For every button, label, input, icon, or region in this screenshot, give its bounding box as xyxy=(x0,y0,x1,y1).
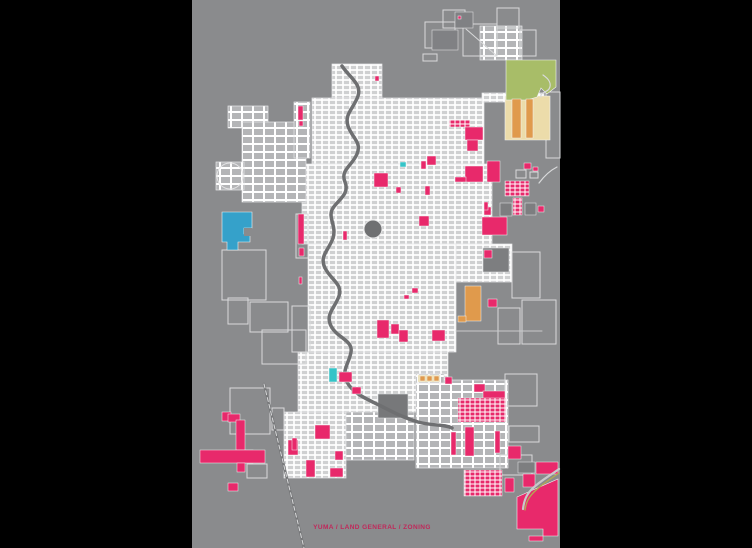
highlight-parcel xyxy=(487,161,500,182)
highlight-parcel xyxy=(228,483,238,491)
highlight-parcel xyxy=(399,330,408,342)
highlight-parcel xyxy=(451,432,456,455)
highlight-parcel xyxy=(374,173,388,187)
highlight-parcel xyxy=(425,186,430,195)
highlight-parcel xyxy=(404,295,409,299)
dark-parcel xyxy=(525,203,536,215)
highlight-parcel xyxy=(343,231,347,240)
highlight-parcel xyxy=(465,166,483,182)
highlight-parcel xyxy=(449,120,470,127)
highlight-parcel xyxy=(505,478,514,492)
highlight-parcel xyxy=(458,398,506,422)
highlight-parcel xyxy=(412,288,418,293)
highlight-parcel xyxy=(335,451,343,460)
highlight-parcel xyxy=(434,376,439,381)
fabric-cluster xyxy=(302,164,492,244)
highlight-parcel xyxy=(484,202,488,210)
city-map[interactable]: YUMA / LAND GENERAL / ZONING xyxy=(0,0,752,548)
dark-parcel xyxy=(455,12,473,28)
highlight-parcel xyxy=(513,198,522,215)
highlight-parcel xyxy=(298,214,304,244)
highlight-parcel xyxy=(420,376,425,381)
highlight-parcel xyxy=(445,377,452,384)
highlight-parcel xyxy=(200,450,265,463)
highlight-parcel xyxy=(432,330,445,341)
highlight-parcel xyxy=(375,76,379,81)
highlight-parcel xyxy=(400,162,406,167)
highlight-parcel xyxy=(526,99,533,138)
highlight-parcel xyxy=(244,228,252,236)
highlight-parcel xyxy=(465,127,483,140)
highlight-parcel xyxy=(419,216,429,226)
highlight-parcel xyxy=(292,438,297,450)
highlight-parcel xyxy=(455,177,466,182)
highlight-parcel xyxy=(484,250,492,258)
dark-parcel xyxy=(500,203,512,216)
highlight-parcel xyxy=(329,368,337,382)
highlight-parcel xyxy=(508,446,521,459)
highlight-parcel xyxy=(352,387,361,394)
highlight-parcel xyxy=(377,320,389,338)
highlight-parcel xyxy=(464,470,502,496)
highlight-parcel xyxy=(523,474,535,487)
dark-parcel xyxy=(518,462,535,473)
highlight-parcel xyxy=(524,163,531,169)
highlight-parcel xyxy=(236,420,245,450)
circle-feature xyxy=(364,220,382,238)
highlight-parcel xyxy=(458,16,461,19)
highlight-parcel xyxy=(237,463,245,472)
fabric-cluster xyxy=(480,26,522,60)
highlight-parcel xyxy=(465,427,474,456)
highlight-parcel xyxy=(396,187,401,193)
highlight-parcel xyxy=(298,106,303,120)
highlight-parcel xyxy=(421,161,426,169)
highlight-parcel xyxy=(339,372,352,382)
dark-parcel xyxy=(432,30,458,50)
highlight-parcel xyxy=(467,140,478,151)
highlight-parcel xyxy=(465,286,481,321)
highlight-parcel xyxy=(529,536,543,541)
fabric-cluster xyxy=(312,98,484,164)
highlight-parcel xyxy=(538,206,544,212)
highlight-parcel xyxy=(458,316,466,322)
highlight-parcel xyxy=(533,167,538,171)
fabric-cluster xyxy=(216,162,244,190)
highlight-parcel xyxy=(482,217,507,235)
highlight-parcel xyxy=(505,181,529,196)
highlight-parcel xyxy=(391,324,399,334)
screenshot-stage: YUMA / LAND GENERAL / ZONING xyxy=(0,0,752,548)
map-caption: YUMA / LAND GENERAL / ZONING xyxy=(313,524,431,531)
highlight-parcel xyxy=(495,431,500,453)
highlight-parcel xyxy=(299,121,303,126)
highlight-parcel xyxy=(299,277,302,284)
highlight-parcel xyxy=(330,468,343,477)
fabric-cluster xyxy=(346,412,414,460)
highlight-parcel xyxy=(488,299,497,307)
highlight-parcel xyxy=(427,156,436,165)
highlight-parcel xyxy=(427,376,432,381)
highlight-parcel xyxy=(315,425,330,439)
highlight-parcel xyxy=(306,460,315,477)
highlight-parcel xyxy=(299,248,304,256)
highlight-parcel xyxy=(512,99,521,138)
